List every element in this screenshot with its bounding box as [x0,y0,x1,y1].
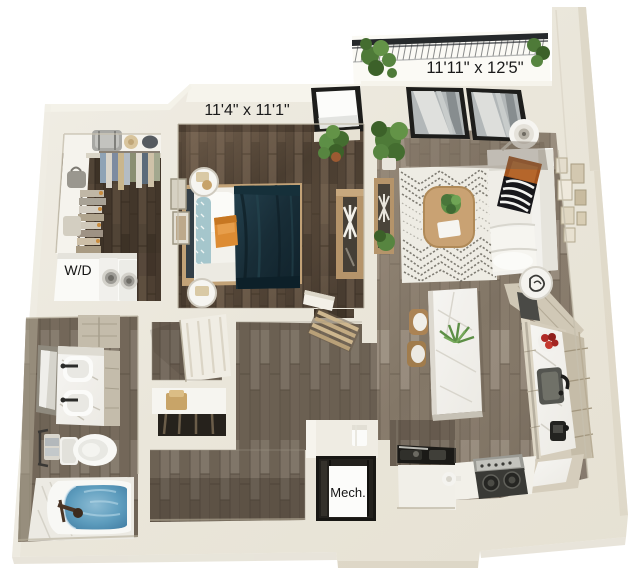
svg-text:11'4" x 11'1": 11'4" x 11'1" [204,102,289,119]
svg-text:11'11" x 12'5": 11'11" x 12'5" [426,59,523,77]
svg-text:Mech.: Mech. [330,485,365,500]
svg-text:W/D: W/D [64,262,91,278]
